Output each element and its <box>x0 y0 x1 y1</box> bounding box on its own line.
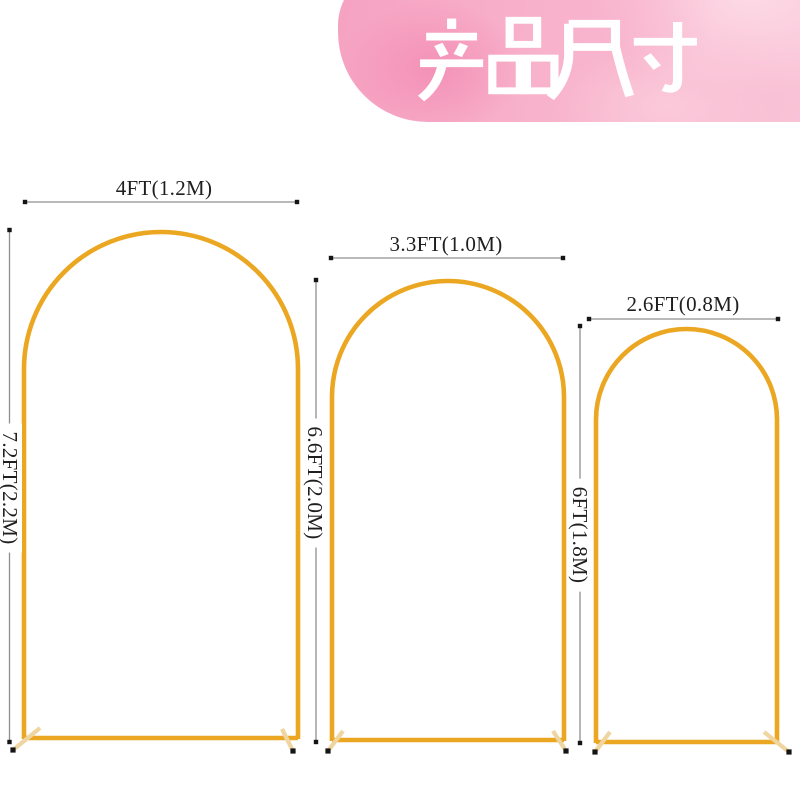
arch-small-frame <box>596 329 777 743</box>
diagram-canvas <box>0 0 800 800</box>
dimension-lines <box>10 202 779 743</box>
arch-small-height-label: 6FT(1.8M) <box>568 479 592 592</box>
arch-small-width-label: 2.6FT(0.8M) <box>627 293 740 315</box>
dimension-end-dots <box>7 200 780 745</box>
arch-medium-height-label: 6.6FT(2.0M) <box>303 419 327 548</box>
arch-medium-frame <box>332 281 564 741</box>
arch-large-width-label: 4FT(1.2M) <box>116 177 213 199</box>
product-dimension-page: 产品尺寸 <box>0 0 800 800</box>
arch-large-frame <box>24 232 298 739</box>
arch-large-height-label: 7.2FT(2.2M) <box>0 424 22 553</box>
arch-feet-caps <box>10 747 791 754</box>
arch-medium-width-label: 3.3FT(1.0M) <box>390 233 503 255</box>
